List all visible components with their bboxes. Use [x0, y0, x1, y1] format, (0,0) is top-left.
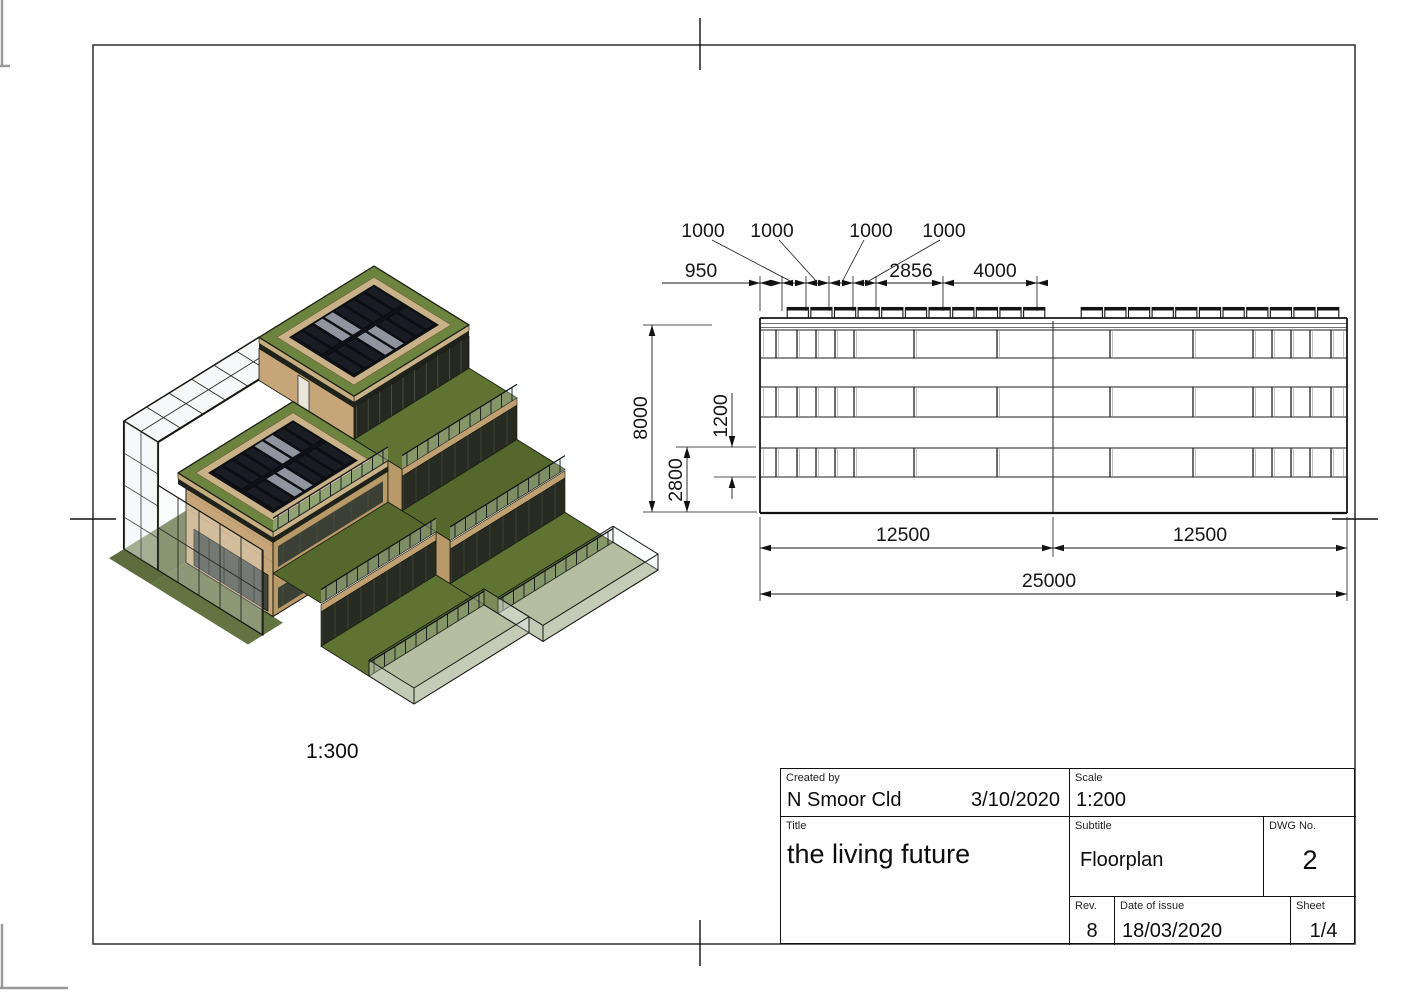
titleblock-dwg-cell: DWG No. 2	[1263, 816, 1356, 896]
dim-1000-3: 1000	[849, 220, 893, 242]
dimension-labels: 950 1000 1000 1000 1000 2856 4000 8000 1…	[630, 220, 1227, 592]
sheet-label: Sheet	[1296, 900, 1356, 912]
dim-950: 950	[685, 260, 718, 282]
subtitle-label: Subtitle	[1075, 820, 1263, 832]
dim-2800: 2800	[665, 458, 687, 502]
dim-25000: 25000	[1022, 570, 1076, 592]
subtitle-value: Floorplan	[1080, 849, 1163, 872]
date-of-issue-value: 18/03/2020	[1122, 920, 1222, 943]
created-by-label: Created by	[786, 772, 1069, 784]
dim-1200: 1200	[710, 394, 732, 438]
dim-2856: 2856	[889, 260, 932, 282]
titleblock-sheet-cell: Sheet 1/4	[1290, 896, 1356, 945]
elevation-drawing	[643, 240, 1347, 601]
rev-value: 8	[1070, 920, 1114, 943]
dim-1000-2: 1000	[750, 220, 794, 242]
building-render	[109, 266, 658, 704]
dim-8000: 8000	[630, 396, 652, 440]
titleblock-created-cell: Created by N Smoor Cld 3/10/2020	[781, 769, 1069, 816]
dim-12500-left: 12500	[876, 524, 930, 546]
dim-4000: 4000	[973, 260, 1017, 282]
dwg-label: DWG No.	[1269, 820, 1356, 832]
titleblock-rev-cell: Rev. 8	[1069, 896, 1114, 945]
title-block: Created by N Smoor Cld 3/10/2020 Scale 1…	[780, 768, 1355, 944]
dim-12500-right: 12500	[1173, 524, 1227, 546]
rev-label: Rev.	[1075, 900, 1114, 912]
title-value: the living future	[787, 839, 970, 870]
created-by-value: N Smoor Cld	[787, 789, 901, 812]
scale-value: 1:200	[1076, 789, 1126, 812]
scale-label: Scale	[1075, 772, 1356, 784]
date-of-issue-label: Date of issue	[1120, 900, 1290, 912]
titleblock-title-cell: Title the living future	[781, 816, 1069, 945]
dwg-value: 2	[1264, 845, 1356, 876]
dim-1000-1: 1000	[681, 220, 725, 242]
titleblock-subtitle-cell: Subtitle Floorplan	[1069, 816, 1263, 896]
title-label: Title	[786, 820, 1069, 832]
titleblock-date-cell: Date of issue 18/03/2020	[1114, 896, 1290, 945]
dim-1000-4: 1000	[922, 220, 966, 242]
render-scale-label: 1:300	[306, 740, 359, 764]
sheet-value: 1/4	[1291, 920, 1356, 943]
titleblock-scale-cell: Scale 1:200	[1069, 769, 1356, 816]
drawing-sheet: 950 1000 1000 1000 1000 2856 4000 8000 1…	[0, 0, 1403, 992]
created-date-value: 3/10/2020	[971, 789, 1060, 812]
